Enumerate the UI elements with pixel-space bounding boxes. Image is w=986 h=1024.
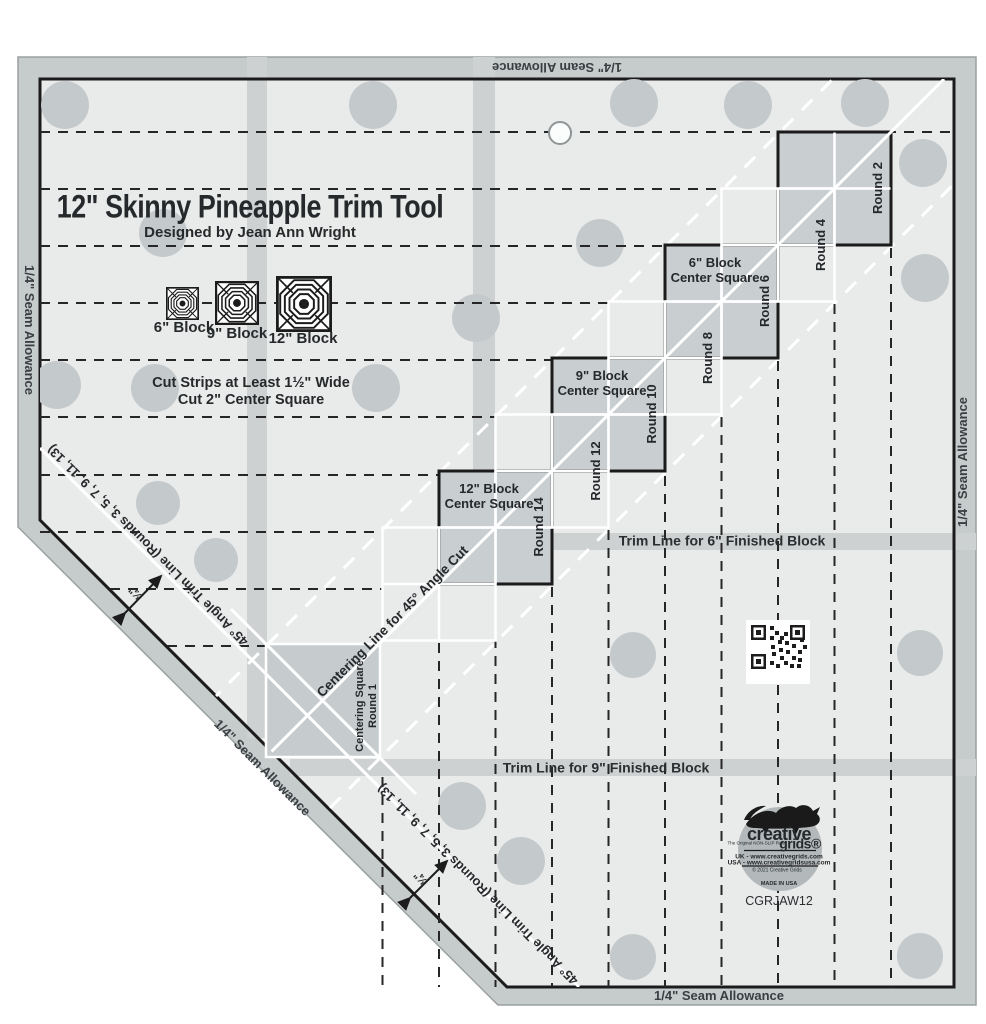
block-icon-9 bbox=[216, 282, 258, 324]
block-icon-label-6: 6" Block bbox=[154, 320, 214, 337]
hanging-hole bbox=[549, 122, 571, 144]
logo-brand-bottom: grids® bbox=[779, 836, 821, 851]
page-subtitle: Designed by Jean Ann Wright bbox=[144, 225, 356, 242]
center-square-9-line1: 9" Block bbox=[558, 368, 647, 383]
logo-usa-url: USA - www.creativegridsusa.com bbox=[728, 859, 831, 866]
seam-allowance-left: 1/4" Seam Allowance bbox=[22, 265, 36, 395]
ruler-product-image: 12" Skinny Pineapple Trim Tool Designed … bbox=[0, 0, 986, 1024]
center-square-12-line1: 12" Block bbox=[445, 481, 534, 496]
cutting-instructions: Cut Strips at Least 1½" Wide Cut 2" Cent… bbox=[152, 375, 350, 409]
block-icon-12 bbox=[277, 277, 330, 330]
center-square-12-label: 12" Block Center Square bbox=[445, 481, 534, 511]
center-square-6-line1: 6" Block bbox=[671, 255, 760, 270]
round-8-label: Round 8 bbox=[701, 332, 715, 384]
round-14-label: Round 14 bbox=[532, 497, 546, 556]
ruler-artwork bbox=[0, 0, 986, 1024]
center-square-6-label: 6" Block Center Square bbox=[671, 255, 760, 285]
block-icon-6 bbox=[167, 288, 198, 319]
round-12-label: Round 12 bbox=[589, 441, 603, 500]
round-2-label: Round 2 bbox=[871, 162, 885, 214]
centering-square-label: Centering Square Round 1 bbox=[354, 660, 380, 752]
centering-square-line1: Centering Square bbox=[354, 660, 367, 752]
seam-allowance-right: 1/4" Seam Allowance bbox=[956, 397, 970, 527]
center-square-6-line2: Center Square bbox=[671, 270, 760, 285]
center-square-9-label: 9" Block Center Square bbox=[558, 368, 647, 398]
trim-line-6-label: Trim Line for 6" Finished Block bbox=[619, 533, 826, 548]
round-4-label: Round 4 bbox=[814, 219, 828, 271]
page-title: 12" Skinny Pineapple Trim Tool bbox=[57, 189, 444, 224]
center-square-12-line2: Center Square bbox=[445, 496, 534, 511]
qr-code bbox=[746, 620, 810, 684]
logo-made-in: MADE IN USA bbox=[761, 881, 797, 887]
instruction-line-1: Cut Strips at Least 1½" Wide bbox=[152, 375, 350, 392]
round-10-label: Round 10 bbox=[645, 384, 659, 443]
trim-line-9-label: Trim Line for 9" Finished Block bbox=[503, 760, 710, 775]
seam-allowance-top: 1/4" Seam Allowance bbox=[492, 60, 622, 74]
centering-square-line2: Round 1 bbox=[367, 660, 380, 752]
center-square-9-line2: Center Square bbox=[558, 383, 647, 398]
instruction-line-2: Cut 2" Center Square bbox=[152, 392, 350, 409]
product-sku: CGRJAW12 bbox=[745, 895, 813, 909]
block-icon-label-9: 9" Block bbox=[207, 326, 267, 343]
round-6-label: Round 6 bbox=[758, 275, 772, 327]
logo-tagline: The Original NON-SLIP Ruler bbox=[728, 842, 787, 847]
logo-copyright: © 2021 Creative Grids bbox=[752, 868, 802, 874]
seam-allowance-bottom: 1/4" Seam Allowance bbox=[654, 989, 784, 1003]
block-icon-label-12: 12" Block bbox=[269, 331, 338, 348]
